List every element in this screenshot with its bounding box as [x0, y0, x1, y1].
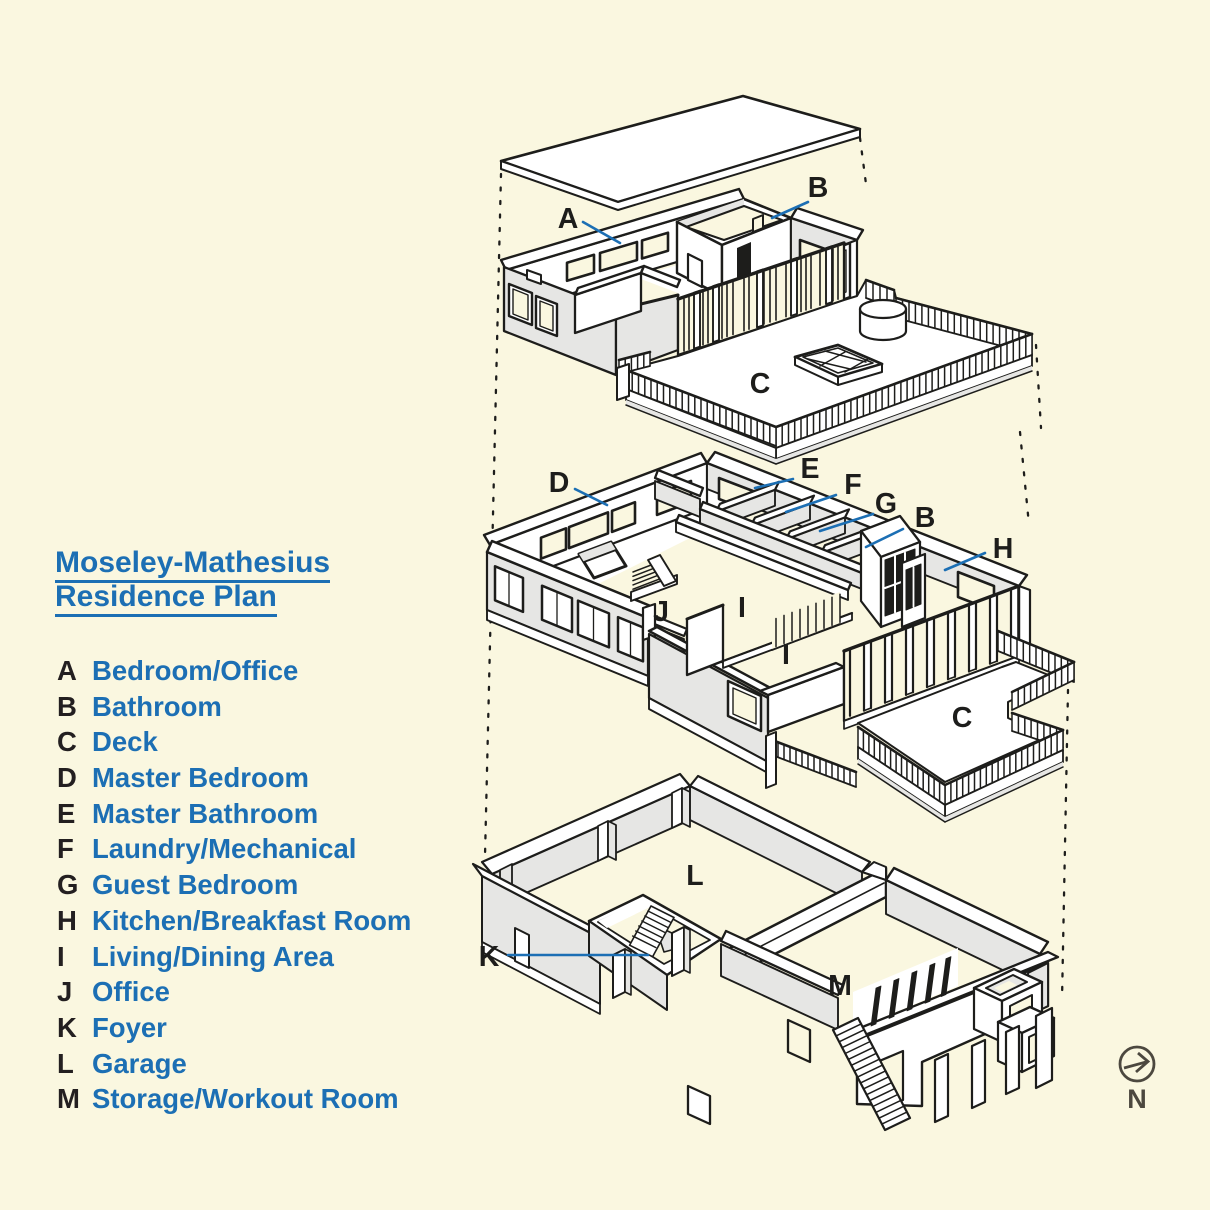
- svg-text:G: G: [875, 488, 897, 520]
- svg-text:K: K: [479, 941, 500, 973]
- svg-text:D: D: [549, 467, 570, 499]
- svg-text:J: J: [653, 596, 669, 628]
- svg-text:C: C: [952, 702, 973, 734]
- svg-text:B: B: [915, 502, 936, 534]
- svg-text:A: A: [558, 203, 579, 235]
- svg-text:I: I: [738, 592, 746, 624]
- svg-text:C: C: [750, 368, 771, 400]
- svg-text:F: F: [844, 469, 861, 501]
- svg-text:L: L: [686, 860, 703, 892]
- svg-text:B: B: [808, 172, 829, 204]
- svg-text:I: I: [782, 639, 790, 671]
- svg-text:M: M: [828, 970, 852, 1002]
- svg-text:E: E: [800, 453, 819, 485]
- svg-text:H: H: [993, 533, 1014, 565]
- svg-text:N: N: [1127, 1084, 1147, 1114]
